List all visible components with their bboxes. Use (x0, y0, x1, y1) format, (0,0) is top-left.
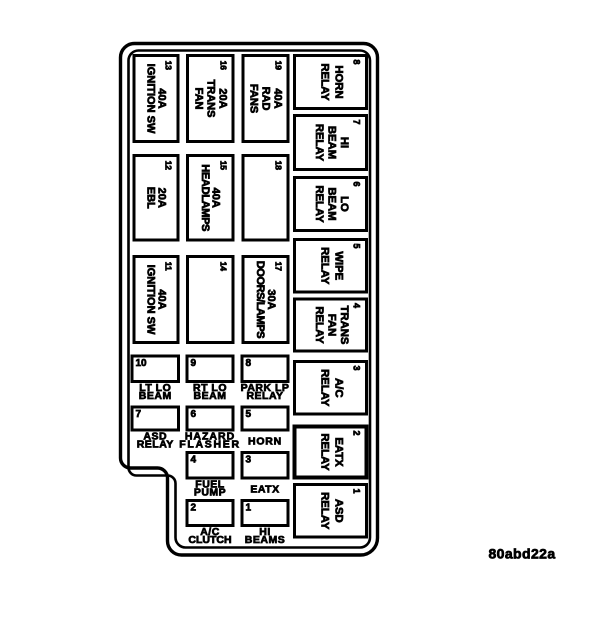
svg-text:12: 12 (164, 161, 174, 171)
svg-text:RELAY: RELAY (319, 63, 331, 101)
svg-text:RELAY: RELAY (313, 306, 325, 344)
svg-text:CLUTCH: CLUTCH (188, 534, 231, 546)
svg-text:WIPE: WIPE (333, 251, 345, 280)
svg-text:TRANS: TRANS (204, 80, 216, 118)
svg-text:EBL: EBL (145, 187, 157, 209)
svg-text:7: 7 (352, 119, 362, 124)
svg-text:2: 2 (352, 430, 362, 435)
svg-text:RELAY: RELAY (319, 247, 331, 285)
svg-text:RELAY: RELAY (319, 433, 331, 471)
svg-text:5: 5 (246, 409, 252, 420)
svg-text:FAN: FAN (326, 314, 338, 337)
svg-text:PUMP: PUMP (194, 487, 226, 499)
svg-text:EATX: EATX (333, 437, 345, 467)
svg-text:IGNITION SW: IGNITION SW (145, 265, 157, 335)
svg-text:4: 4 (191, 455, 197, 466)
svg-text:3: 3 (246, 455, 252, 466)
svg-text:17: 17 (274, 262, 284, 272)
svg-text:11: 11 (164, 262, 174, 271)
svg-text:FLASHER: FLASHER (179, 439, 240, 451)
svg-text:7: 7 (136, 409, 142, 420)
svg-text:BEAM: BEAM (139, 390, 172, 402)
svg-text:14: 14 (219, 262, 229, 272)
svg-text:FAN: FAN (192, 88, 204, 110)
svg-text:BEAM: BEAM (194, 390, 227, 402)
svg-text:80abd22a: 80abd22a (488, 546, 555, 562)
svg-text:FANS: FANS (248, 84, 260, 113)
svg-text:5: 5 (352, 243, 362, 248)
svg-text:1: 1 (352, 488, 362, 493)
svg-text:8: 8 (352, 59, 362, 64)
svg-text:3: 3 (352, 365, 362, 370)
svg-text:RAD: RAD (260, 87, 272, 111)
svg-text:10: 10 (136, 358, 148, 369)
svg-text:BEAM: BEAM (326, 187, 338, 220)
svg-text:BEAMS: BEAMS (245, 534, 285, 546)
svg-text:BEAM: BEAM (326, 126, 338, 159)
svg-text:EATX: EATX (250, 484, 279, 496)
svg-text:13: 13 (164, 61, 174, 71)
svg-text:19: 19 (274, 61, 284, 71)
svg-text:IGNITION SW: IGNITION SW (145, 64, 157, 134)
svg-text:40A: 40A (272, 88, 284, 108)
svg-text:HORN: HORN (333, 65, 345, 98)
svg-text:RELAY: RELAY (319, 369, 331, 407)
svg-text:15: 15 (219, 161, 229, 171)
svg-text:20A: 20A (216, 88, 228, 108)
svg-text:6: 6 (352, 181, 362, 186)
svg-text:RELAY: RELAY (313, 124, 325, 162)
svg-text:A/C: A/C (333, 378, 345, 397)
svg-text:9: 9 (191, 358, 197, 369)
svg-text:ASD: ASD (333, 499, 345, 523)
svg-text:DOORS/LAMPS: DOORS/LAMPS (254, 261, 266, 339)
svg-text:RELAY: RELAY (246, 390, 283, 402)
svg-text:1: 1 (246, 503, 252, 514)
svg-text:16: 16 (219, 61, 229, 71)
svg-text:TRANS: TRANS (338, 306, 350, 345)
svg-text:HI: HI (338, 137, 350, 148)
svg-text:4: 4 (352, 303, 362, 308)
svg-text:RELAY: RELAY (319, 492, 331, 530)
svg-text:LO: LO (338, 196, 350, 212)
svg-text:2: 2 (191, 503, 197, 514)
svg-text:18: 18 (274, 161, 284, 171)
svg-text:HEADLAMPS: HEADLAMPS (199, 164, 211, 231)
svg-text:8: 8 (246, 358, 252, 369)
svg-text:RELAY: RELAY (313, 185, 325, 223)
svg-text:6: 6 (191, 409, 197, 420)
svg-text:HORN: HORN (248, 436, 282, 448)
svg-text:RELAY: RELAY (137, 439, 174, 451)
